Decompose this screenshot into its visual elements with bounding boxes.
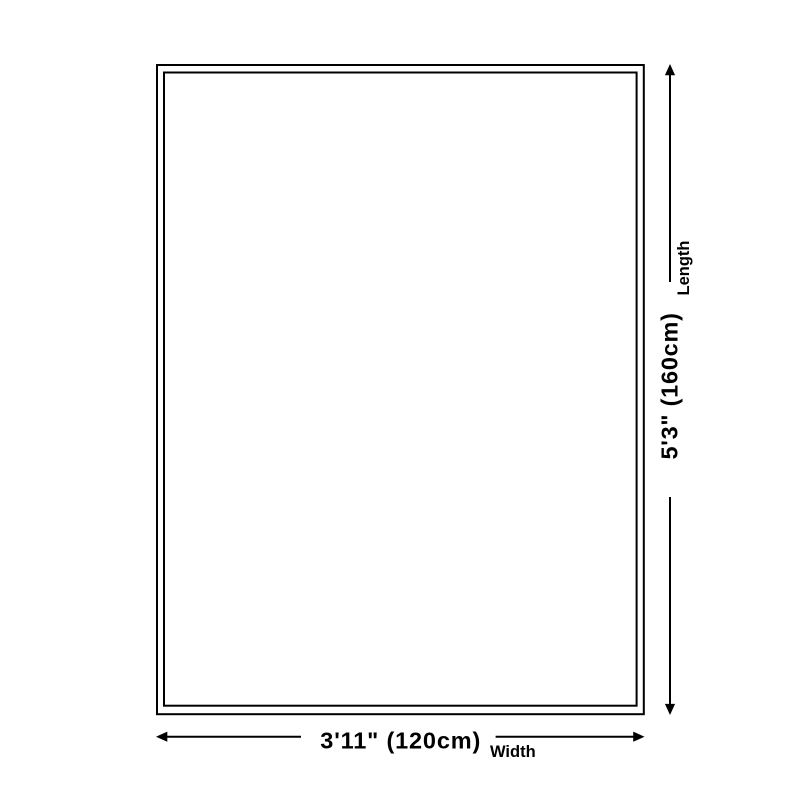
svg-text:Width: Width (490, 743, 536, 761)
svg-text:Length: Length (675, 241, 693, 296)
svg-text:5'3" (160cm): 5'3" (160cm) (656, 313, 682, 460)
svg-text:3'11" (120cm): 3'11" (120cm) (320, 727, 480, 753)
